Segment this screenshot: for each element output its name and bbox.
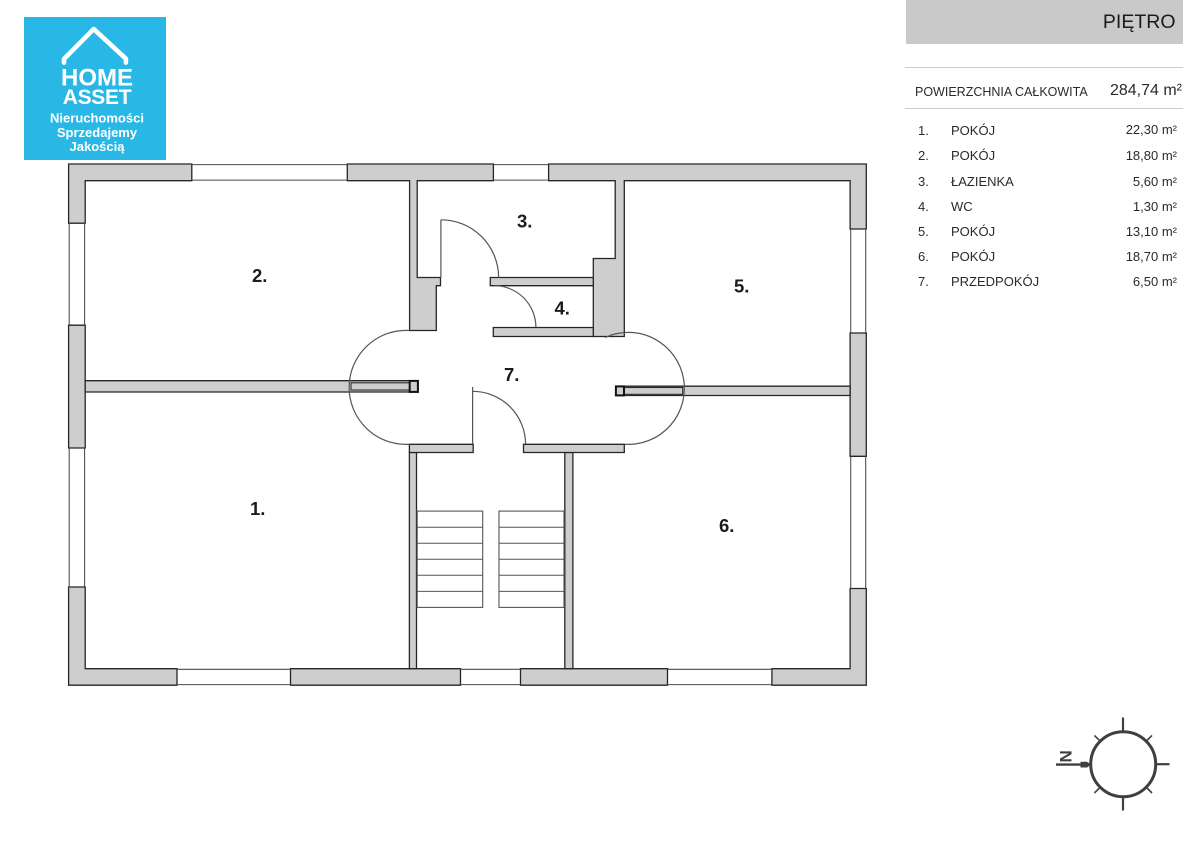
svg-text:6.: 6. [719,515,734,536]
svg-text:4.: 4. [555,298,570,319]
svg-text:1.: 1. [250,498,265,519]
svg-text:3.: 3. [517,211,532,232]
svg-text:2.: 2. [252,265,267,286]
svg-text:N: N [1057,750,1076,762]
svg-text:7.: 7. [504,364,519,385]
svg-text:5.: 5. [734,276,749,297]
